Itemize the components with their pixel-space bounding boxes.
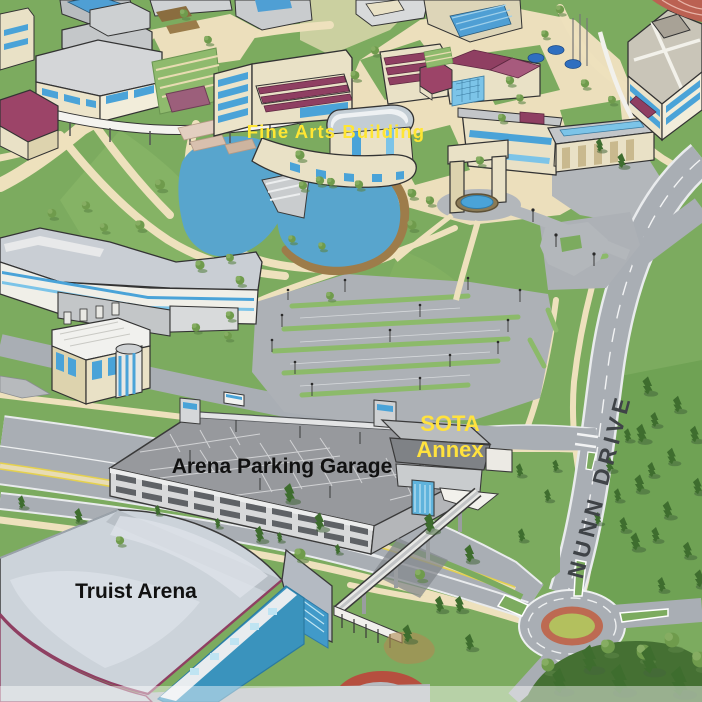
svg-text:Fine Arts Building: Fine Arts Building xyxy=(247,121,425,142)
svg-text:SOTA: SOTA xyxy=(420,411,480,436)
svg-text:Annex: Annex xyxy=(416,437,484,462)
svg-text:Arena Parking Garage: Arena Parking Garage xyxy=(172,455,393,478)
svg-text:Truist Arena: Truist Arena xyxy=(75,580,197,603)
